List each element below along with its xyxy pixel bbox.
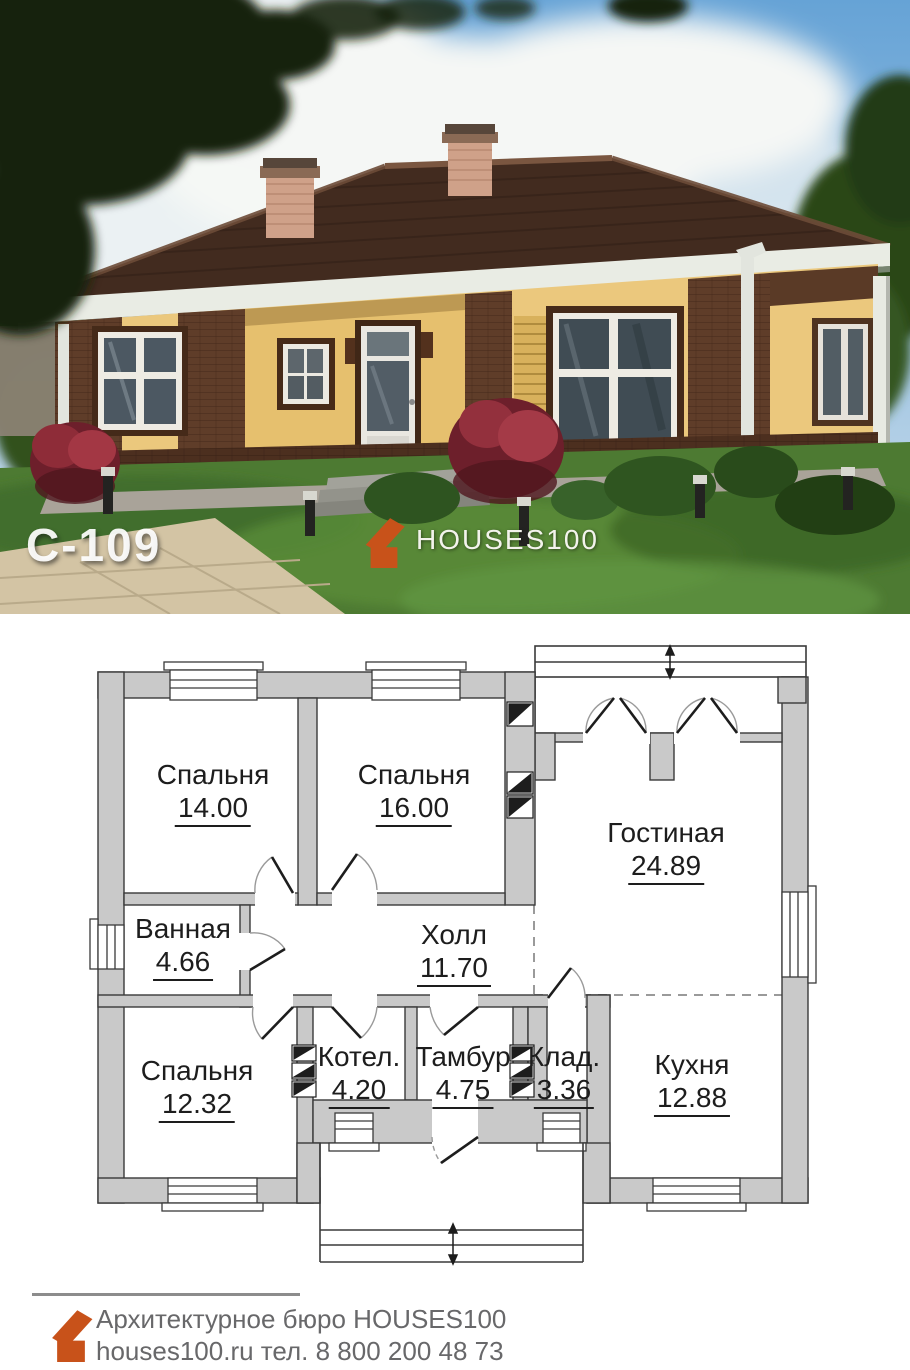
brand-house-icon [362,512,406,568]
room-area: 16.00 [376,791,452,827]
room-label-vestibule: Тамбур 4.75 [415,1040,510,1109]
room-area: 3.36 [534,1073,595,1109]
room-label-bedroom-3: Спальня 12.32 [141,1054,254,1123]
room-area: 14.00 [175,791,251,827]
room-area: 4.20 [329,1073,390,1109]
room-name: Спальня [157,758,270,791]
room-label-storage: Клад. 3.36 [528,1040,600,1109]
room-name: Котел. [318,1040,401,1073]
footer-company: Архитектурное бюро HOUSES100 [96,1303,506,1335]
footer-divider [32,1293,300,1296]
room-name: Кухня [654,1048,730,1081]
brand-watermark: HOUSES100 [362,512,599,568]
chimney-left [260,158,320,238]
footer-website-phone: houses100.ru тел. 8 800 200 48 73 [96,1335,506,1367]
red-bush-center [448,398,564,504]
window-left [92,326,188,436]
porch-small-window [277,338,335,410]
room-label-bedroom-2: Спальня 16.00 [358,758,471,827]
footer-contacts: Архитектурное бюро HOUSES100 houses100.r… [96,1303,506,1367]
room-area: 24.89 [628,849,704,885]
room-label-hall: Холл 11.70 [417,918,491,987]
footer-brand-house-icon [48,1304,94,1362]
flyer-page: { "photo": { "plan_code": "С-109", "bran… [0,0,910,1370]
project-code: С-109 [26,518,161,572]
room-label-living-room: Гостиная 24.89 [607,816,725,885]
chimney-right [442,124,498,196]
brand-name: HOUSES100 [416,524,599,556]
room-label-bedroom-1: Спальня 14.00 [157,758,270,827]
room-name: Ванная [135,912,231,945]
window-side [812,318,874,426]
room-name: Спальня [358,758,471,791]
room-area: 11.70 [417,951,491,987]
room-area: 12.88 [654,1081,730,1117]
room-name: Спальня [141,1054,254,1087]
room-area: 4.75 [433,1073,494,1109]
room-label-bathroom: Ванная 4.66 [135,912,231,981]
room-area: 12.32 [159,1087,235,1123]
room-label-boiler-room: Котел. 4.20 [318,1040,401,1109]
room-name: Гостиная [607,816,725,849]
room-name: Клад. [528,1040,600,1073]
room-name: Тамбур [415,1040,510,1073]
room-label-kitchen: Кухня 12.88 [654,1048,730,1117]
room-name: Холл [417,918,491,951]
room-area: 4.66 [153,945,214,981]
